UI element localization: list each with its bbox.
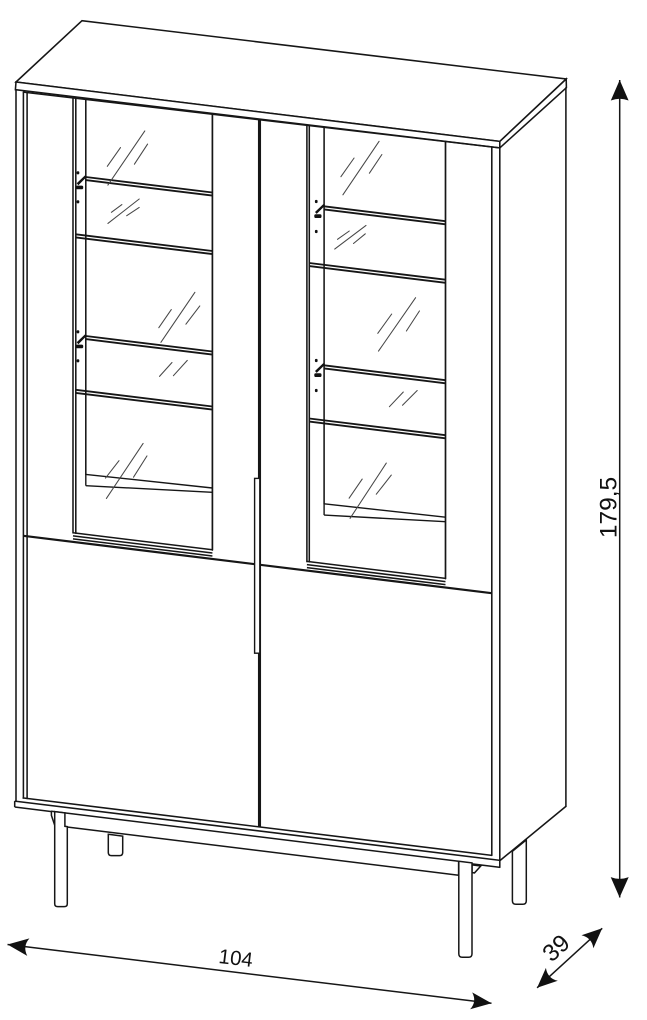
svg-text:179,5: 179,5 [596, 477, 623, 538]
svg-text:104: 104 [217, 945, 254, 972]
